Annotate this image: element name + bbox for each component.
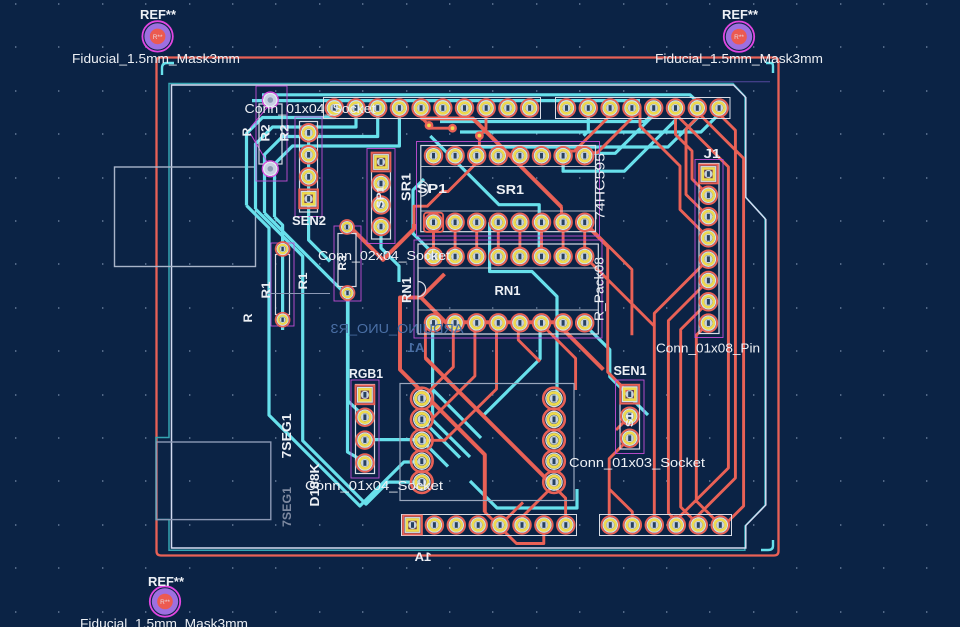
- svg-text:R3: R3: [337, 256, 349, 271]
- svg-text:RGB1: RGB1: [349, 366, 383, 381]
- svg-text:7SEG1: 7SEG1: [280, 487, 294, 527]
- svg-text:SP1: SP1: [375, 186, 387, 208]
- svg-text:REF**: REF**: [722, 7, 759, 22]
- svg-text:R: R: [240, 127, 254, 136]
- svg-text:SR1: SR1: [496, 182, 524, 197]
- svg-text:R2: R2: [259, 124, 273, 141]
- svg-text:S1: S1: [625, 413, 636, 427]
- svg-text:Conn_01x04_Socket: Conn_01x04_Socket: [245, 101, 376, 116]
- svg-text:REF**: REF**: [148, 574, 185, 589]
- svg-text:74HC595: 74HC595: [593, 153, 608, 220]
- svg-text:A1: A1: [407, 341, 424, 355]
- svg-text:ARDUINO_UNO_R3: ARDUINO_UNO_R3: [331, 321, 464, 336]
- svg-text:Conn_01x04_Socket: Conn_01x04_Socket: [305, 478, 443, 493]
- svg-text:SR1: SR1: [400, 173, 414, 201]
- svg-text:R1: R1: [259, 281, 273, 298]
- svg-text:Fiducial_1.5mm_Mask3mm: Fiducial_1.5mm_Mask3mm: [80, 616, 248, 627]
- svg-text:Conn_01x03_Socket: Conn_01x03_Socket: [569, 455, 705, 470]
- svg-text:Conn_01x08_Pin: Conn_01x08_Pin: [656, 341, 760, 356]
- svg-text:7SEG1: 7SEG1: [280, 413, 294, 458]
- svg-text:REF**: REF**: [140, 7, 177, 22]
- svg-text:R: R: [241, 313, 255, 322]
- svg-text:R1: R1: [296, 272, 310, 289]
- svg-text:SEN1: SEN1: [614, 363, 647, 378]
- svg-text:RN1: RN1: [400, 277, 414, 303]
- svg-text:R_Pack08: R_Pack08: [592, 257, 607, 321]
- svg-text:Fiducial_1.5mm_Mask3mm: Fiducial_1.5mm_Mask3mm: [655, 51, 823, 66]
- svg-text:R2: R2: [278, 124, 292, 141]
- svg-text:SEN2: SEN2: [292, 213, 326, 228]
- svg-text:RN1: RN1: [495, 283, 521, 298]
- svg-text:Fiducial_1.5mm_Mask3mm: Fiducial_1.5mm_Mask3mm: [72, 51, 240, 66]
- svg-text:1A: 1A: [414, 550, 431, 564]
- svg-text:J1: J1: [704, 146, 721, 161]
- svg-text:SP1: SP1: [417, 181, 447, 196]
